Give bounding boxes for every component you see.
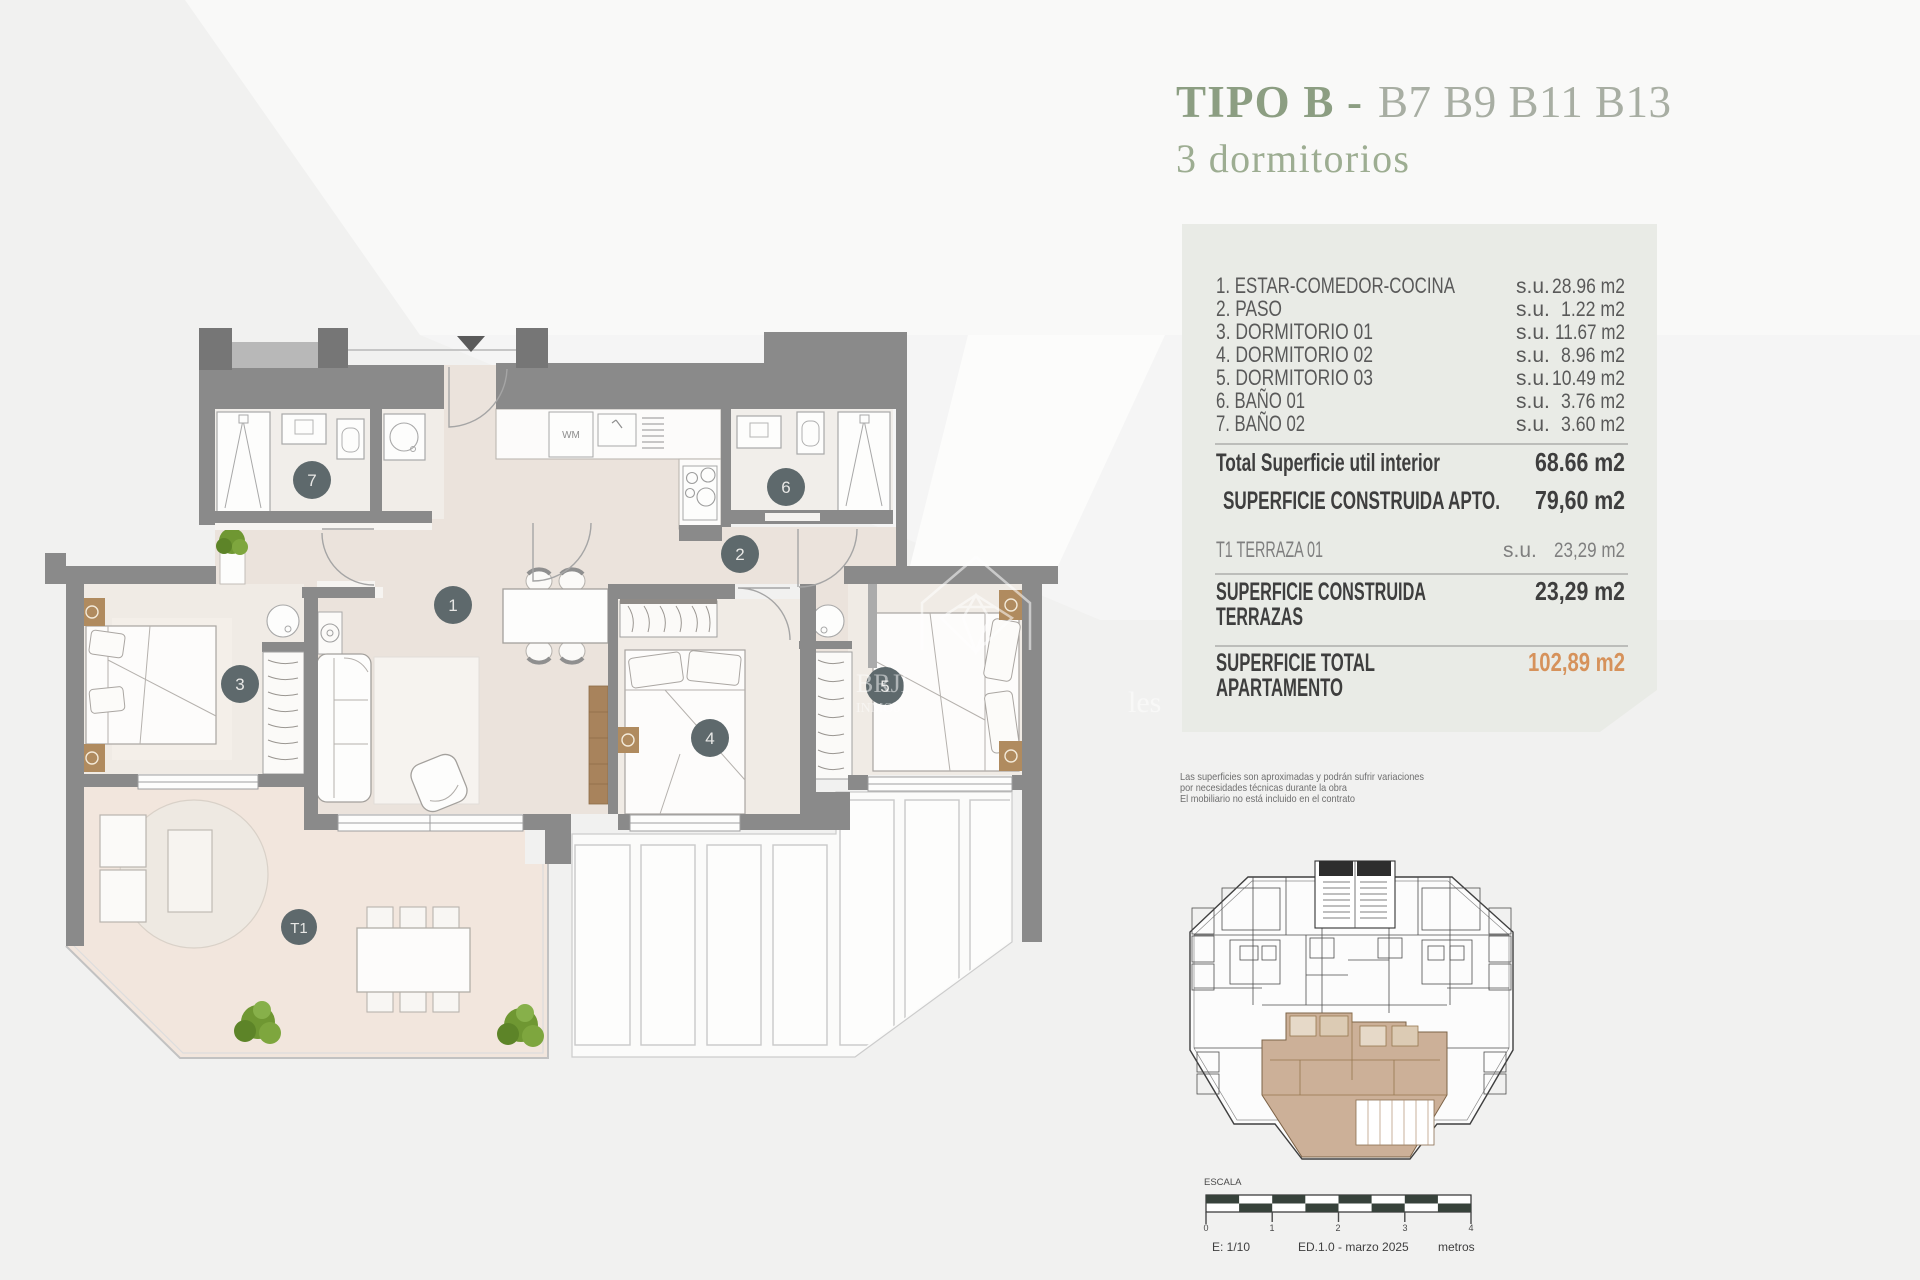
svg-text:WM: WM bbox=[562, 430, 580, 441]
svg-text:T1 TERRAZA 01: T1 TERRAZA 01 bbox=[1216, 537, 1323, 562]
svg-text:s.u.: s.u. bbox=[1516, 367, 1550, 390]
svg-text:SUPERFICIE CONSTRUIDA APTO.: SUPERFICIE CONSTRUIDA APTO. bbox=[1223, 487, 1500, 515]
svg-text:E: 1/10: E: 1/10 bbox=[1212, 1240, 1250, 1254]
svg-text:El mobiliario no está incluido: El mobiliario no está incluido en el con… bbox=[1180, 793, 1355, 805]
svg-text:1: 1 bbox=[1269, 1223, 1274, 1233]
svg-text:s.u.: s.u. bbox=[1516, 275, 1550, 298]
svg-text:4: 4 bbox=[705, 729, 714, 748]
svg-text:s.u.: s.u. bbox=[1503, 539, 1537, 562]
svg-text:ED.1.0 - marzo 2025: ED.1.0 - marzo 2025 bbox=[1298, 1240, 1409, 1254]
svg-text:SUPERFICIE CONSTRUIDA: SUPERFICIE CONSTRUIDA bbox=[1216, 578, 1426, 606]
svg-text:7. BAÑO 02: 7. BAÑO 02 bbox=[1216, 411, 1305, 436]
svg-text:3. DORMITORIO 01: 3. DORMITORIO 01 bbox=[1216, 319, 1373, 344]
svg-text:3.60 m2: 3.60 m2 bbox=[1561, 413, 1625, 436]
svg-text:INMOb: INMOb bbox=[856, 701, 900, 716]
svg-text:68.66 m2: 68.66 m2 bbox=[1535, 447, 1625, 477]
svg-text:les: les bbox=[1128, 686, 1161, 719]
svg-text:APARTAMENTO: APARTAMENTO bbox=[1216, 674, 1343, 702]
svg-text:4: 4 bbox=[1468, 1223, 1473, 1233]
svg-text:23,29 m2: 23,29 m2 bbox=[1535, 576, 1625, 606]
svg-text:7: 7 bbox=[307, 471, 316, 490]
svg-text:2: 2 bbox=[1335, 1223, 1340, 1233]
svg-text:s.u.: s.u. bbox=[1516, 344, 1550, 367]
svg-text:BRJl: BRJl bbox=[856, 669, 908, 698]
svg-text:11.67 m2: 11.67 m2 bbox=[1555, 321, 1625, 344]
svg-text:3.76 m2: 3.76 m2 bbox=[1561, 390, 1625, 413]
svg-text:2. PASO: 2. PASO bbox=[1216, 296, 1282, 321]
svg-text:3: 3 bbox=[1402, 1223, 1407, 1233]
svg-text:T1: T1 bbox=[290, 920, 308, 937]
svg-text:ESCALA: ESCALA bbox=[1204, 1177, 1242, 1188]
svg-text:s.u.: s.u. bbox=[1516, 298, 1550, 321]
svg-text:102,89 m2: 102,89 m2 bbox=[1528, 647, 1625, 677]
svg-text:SUPERFICIE TOTAL: SUPERFICIE TOTAL bbox=[1216, 649, 1375, 677]
svg-text:1. ESTAR-COMEDOR-COCINA: 1. ESTAR-COMEDOR-COCINA bbox=[1216, 273, 1455, 298]
svg-text:B7 B9 B11 B13: B7 B9 B11 B13 bbox=[1378, 77, 1671, 127]
svg-text:1: 1 bbox=[448, 596, 457, 615]
svg-text:Total Superficie util interior: Total Superficie util interior bbox=[1216, 449, 1440, 477]
svg-text:79,60 m2: 79,60 m2 bbox=[1535, 485, 1625, 515]
svg-text:6. BAÑO 01: 6. BAÑO 01 bbox=[1216, 388, 1305, 413]
svg-text:0: 0 bbox=[1203, 1223, 1208, 1233]
svg-text:10.49 m2: 10.49 m2 bbox=[1552, 367, 1625, 390]
svg-text:28.96 m2: 28.96 m2 bbox=[1552, 275, 1625, 298]
svg-text:s.u.: s.u. bbox=[1516, 413, 1550, 436]
svg-text:3: 3 bbox=[235, 675, 244, 694]
svg-text:s.u.: s.u. bbox=[1516, 321, 1550, 344]
svg-text:3 dormitorios: 3 dormitorios bbox=[1176, 136, 1409, 181]
svg-text:1.22 m2: 1.22 m2 bbox=[1561, 298, 1625, 321]
svg-text:metros: metros bbox=[1438, 1240, 1475, 1254]
svg-text:TERRAZAS: TERRAZAS bbox=[1216, 603, 1303, 631]
svg-text:TIPO B -: TIPO B - bbox=[1176, 77, 1362, 127]
svg-text:2: 2 bbox=[735, 545, 744, 564]
svg-text:s.u.: s.u. bbox=[1516, 390, 1550, 413]
svg-text:8.96 m2: 8.96 m2 bbox=[1561, 344, 1625, 367]
svg-text:6: 6 bbox=[781, 478, 790, 497]
svg-text:4. DORMITORIO 02: 4. DORMITORIO 02 bbox=[1216, 342, 1373, 367]
svg-text:5. DORMITORIO 03: 5. DORMITORIO 03 bbox=[1216, 365, 1373, 390]
svg-text:23,29 m2: 23,29 m2 bbox=[1554, 539, 1625, 562]
